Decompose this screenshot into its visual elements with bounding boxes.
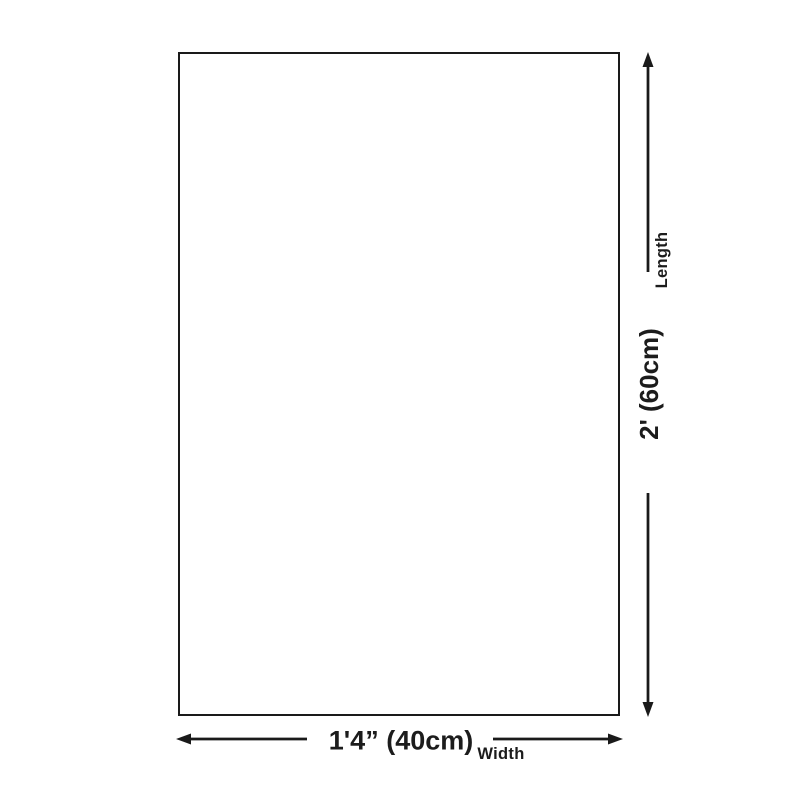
length-label: Length bbox=[654, 232, 671, 289]
length-arrowhead-up bbox=[643, 52, 654, 67]
dimension-diagram: Length 2' (60cm) 1'4” (40cm) Width bbox=[0, 0, 800, 800]
width-label: Width bbox=[477, 746, 524, 763]
product-outline-rect bbox=[178, 52, 620, 716]
length-arrowhead-down bbox=[643, 702, 654, 717]
width-arrowhead-right bbox=[608, 734, 623, 745]
width-arrowhead-left bbox=[176, 734, 191, 745]
width-value: 1'4” (40cm) bbox=[329, 728, 474, 755]
length-value: 2' (60cm) bbox=[636, 328, 662, 440]
